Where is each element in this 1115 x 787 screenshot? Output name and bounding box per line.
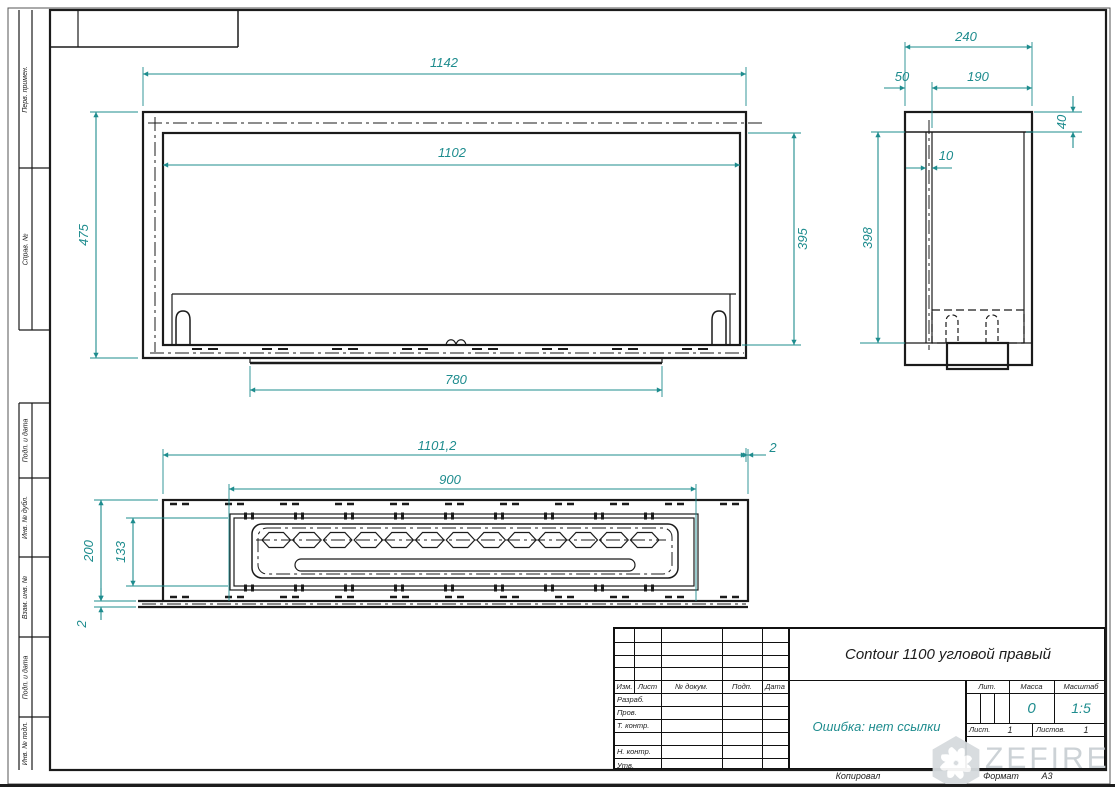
margin-label-text: Справ. № (22, 233, 29, 265)
row-prov: Пров. (615, 706, 663, 719)
dim-side-height: 398 (860, 208, 876, 268)
dim-side-10: 10 (928, 148, 964, 164)
margin-inv-podl: Инв. № подл. (19, 717, 32, 770)
grid-line (980, 693, 981, 723)
col-data: Дата (762, 680, 788, 693)
margin-sprav-no: Справ. № (19, 168, 32, 330)
margin-label-text: Подп. и дата (22, 419, 29, 463)
listov-value: 1 (1070, 723, 1102, 736)
dim-front-inner-width: 1102 (412, 145, 492, 161)
margin-inv-dubl: Инв. № дубл. (19, 478, 32, 557)
dim-top-right: 2 (761, 440, 785, 456)
list-label: Лист. (967, 723, 997, 736)
row-nkontr: Н. контр. (615, 745, 663, 758)
row-tkontr: Т. контр. (615, 719, 663, 732)
dim-side-depth: 240 (926, 29, 1006, 45)
grid-line (994, 693, 995, 723)
margin-label-text: Перв. примен. (22, 66, 29, 113)
dim-top-inner: 133 (113, 522, 129, 582)
grid-line (722, 629, 723, 768)
list-value: 1 (995, 723, 1025, 736)
dim-front-inner-height: 395 (795, 209, 811, 269)
masshtab-value: 1:5 (1054, 693, 1108, 723)
dim-top-offset: 2 (74, 609, 90, 639)
margin-label-text: Подп. и дата (22, 655, 29, 699)
row-utv: Утв. (615, 758, 663, 772)
dim-side-190: 190 (948, 69, 1008, 85)
footer-format-label: Формат (971, 771, 1031, 781)
dim-front-bottom: 780 (416, 372, 496, 388)
margin-label-text: Инв. № дубл. (22, 496, 29, 539)
drawing-title: Contour 1100 угловой правый (788, 629, 1108, 680)
masshtab-label: Масштаб (1054, 680, 1108, 693)
grid-line (965, 736, 1104, 737)
col-dokum: № докум. (661, 680, 722, 693)
lit-label: Лит. (965, 680, 1009, 693)
margin-vzam-inv: Взам. инв. № (19, 557, 32, 637)
dim-top-burner: 900 (410, 472, 490, 488)
dim-side-50: 50 (884, 69, 920, 85)
massa-label: Масса (1009, 680, 1054, 693)
margin-podp-data-1: Подп. и дата (19, 403, 32, 478)
listov-label: Листов. (1034, 723, 1072, 736)
dim-front-width: 1142 (404, 55, 484, 71)
dim-front-height: 475 (76, 205, 92, 265)
side-view (860, 42, 1082, 369)
margin-label-text: Взам. инв. № (22, 575, 29, 618)
col-list: Лист (634, 680, 661, 693)
footer-format-value: А3 (1027, 771, 1067, 781)
dim-side-40: 40 (1055, 102, 1069, 142)
row-razrab: Разраб. (615, 693, 663, 706)
dim-top-length: 1101,2 (397, 438, 477, 454)
margin-podp-data-2: Подп. и дата (19, 637, 32, 717)
drawing-sheet: Изм. Лист № докум. Подп. Дата Разраб. Пр… (0, 0, 1115, 787)
front-view (90, 67, 801, 397)
margin-label-text: Инв. № подл. (22, 722, 29, 765)
error-text: Ошибка: нет ссылки (788, 680, 965, 772)
col-podp: Подп. (722, 680, 762, 693)
footer-kopiroval: Копировал (808, 771, 908, 781)
margin-perv-primen: Перв. примен. (19, 10, 32, 168)
grid-line (762, 629, 763, 768)
massa-value: 0 (1009, 693, 1054, 723)
dim-top-depth: 200 (81, 521, 97, 581)
col-izm: Изм. (615, 680, 634, 693)
